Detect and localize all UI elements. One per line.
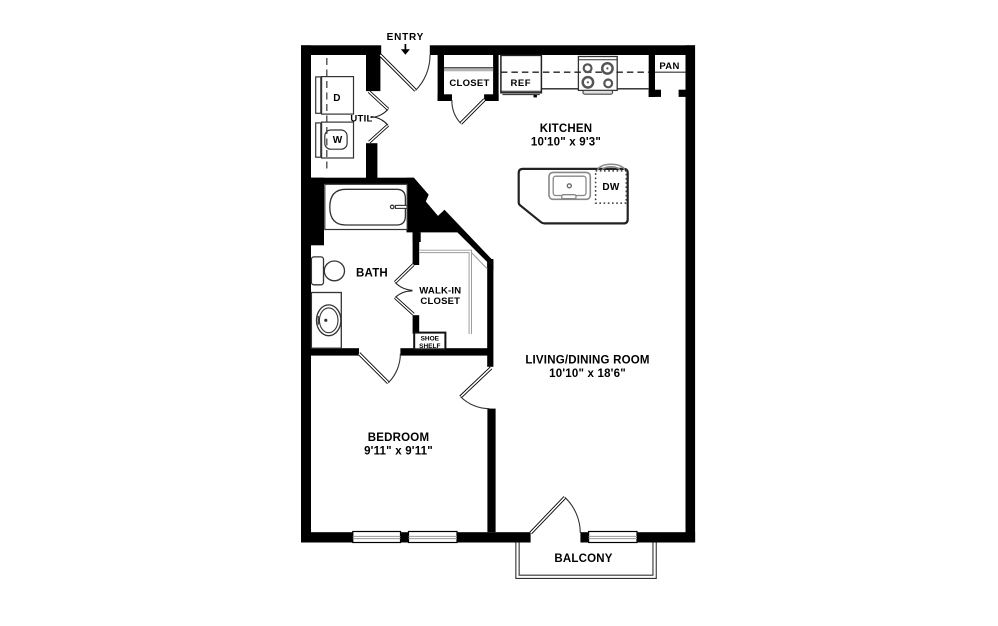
svg-text:9'11" x 9'11": 9'11" x 9'11" <box>364 445 433 457</box>
svg-text:PAN: PAN <box>659 61 679 72</box>
svg-text:WALK-IN: WALK-IN <box>419 286 461 297</box>
svg-text:D: D <box>333 93 340 104</box>
svg-text:CLOSET: CLOSET <box>420 296 460 307</box>
svg-text:BATH: BATH <box>356 268 388 280</box>
svg-text:10'10" x 9'3": 10'10" x 9'3" <box>531 136 601 148</box>
svg-text:SHOE: SHOE <box>421 335 440 342</box>
svg-text:BEDROOM: BEDROOM <box>368 432 429 444</box>
svg-text:CLOSET: CLOSET <box>449 78 489 89</box>
svg-text:REF: REF <box>511 78 532 89</box>
svg-text:10'10" x 18'6": 10'10" x 18'6" <box>549 368 626 380</box>
svg-text:W: W <box>333 135 343 146</box>
svg-text:ENTRY: ENTRY <box>387 32 425 43</box>
svg-text:DW: DW <box>602 182 620 193</box>
svg-text:UTIL: UTIL <box>350 113 372 124</box>
svg-text:SHELF: SHELF <box>419 343 440 350</box>
svg-text:BALCONY: BALCONY <box>554 553 612 565</box>
svg-text:LIVING/DINING ROOM: LIVING/DINING ROOM <box>525 354 649 366</box>
svg-text:KITCHEN: KITCHEN <box>540 123 593 135</box>
